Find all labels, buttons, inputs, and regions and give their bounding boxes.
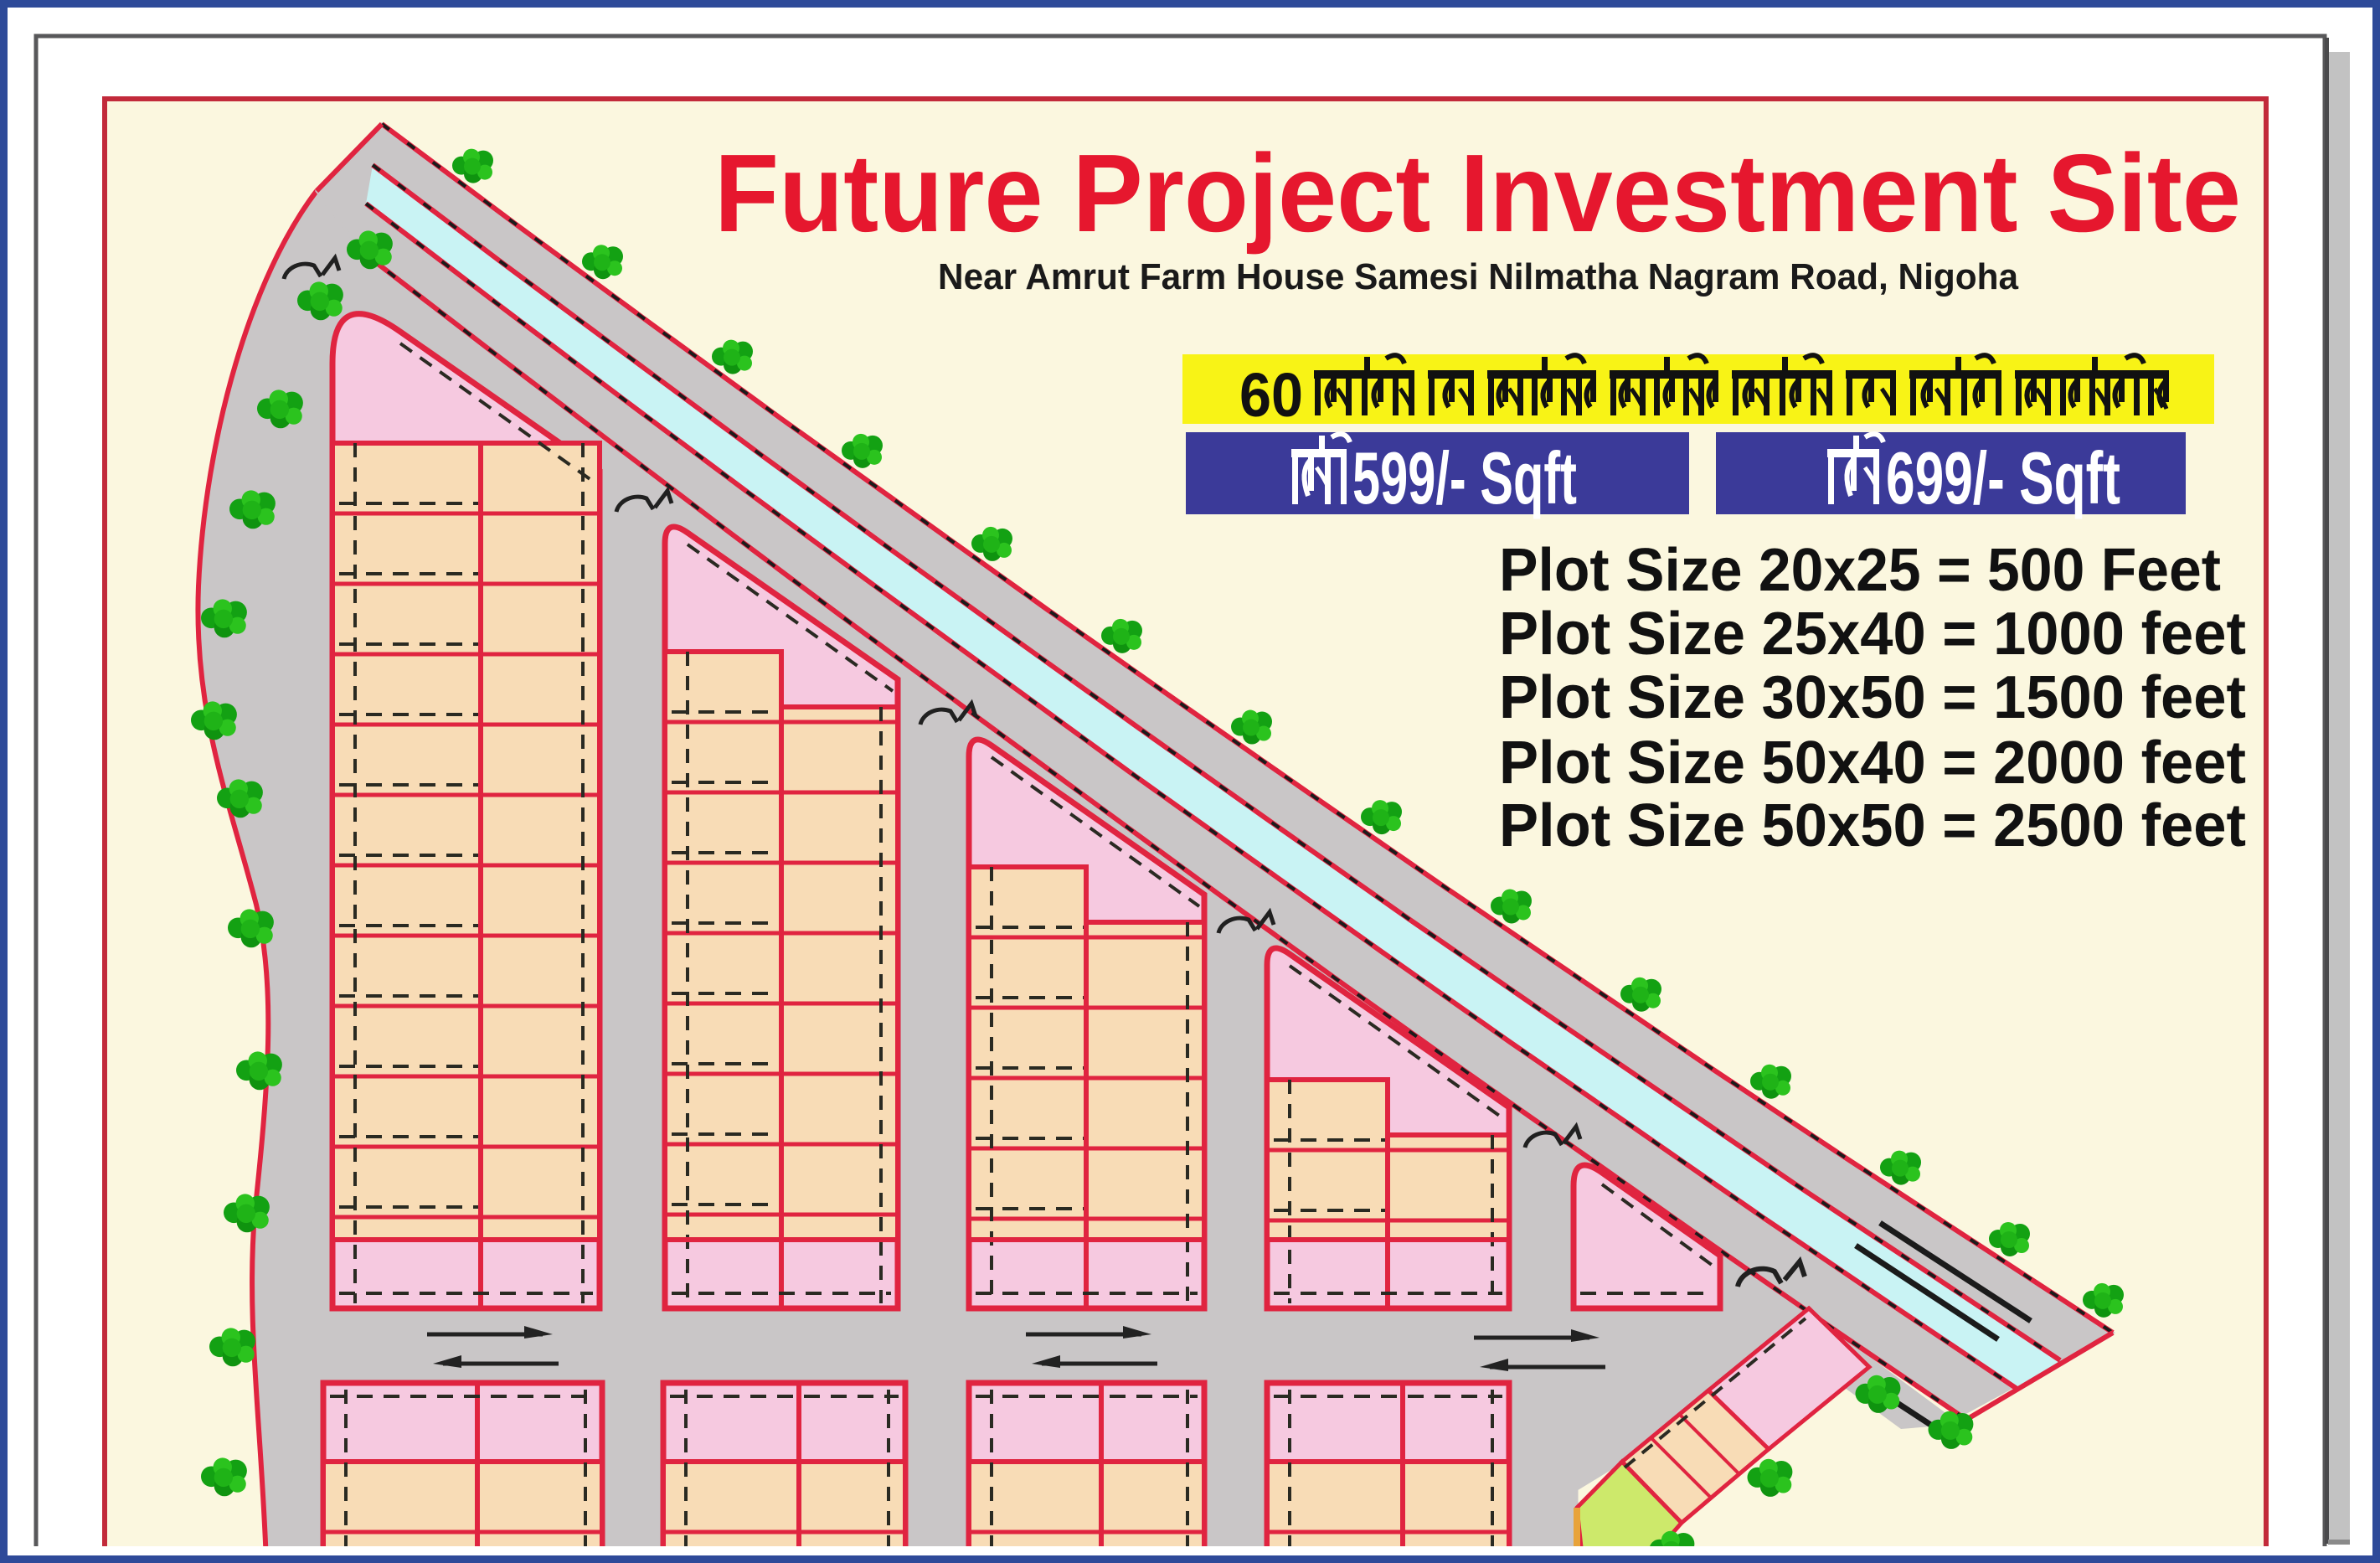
svg-text:699/- Sqft: 699/- Sqft (1886, 436, 2120, 519)
svg-text:Plot Size 25x40 = 1000 feet: Plot Size 25x40 = 1000 feet (1499, 601, 2246, 668)
svg-text:Plot Size 50x40 = 2000 feet: Plot Size 50x40 = 2000 feet (1499, 730, 2246, 797)
svg-text:Plot Size 30x50 = 1500 feet: Plot Size 30x50 = 1500 feet (1499, 664, 2246, 731)
svg-text:Future Project Investment Site: Future Project Investment Site (714, 132, 2241, 255)
svg-text:Plot Size 50x50 = 2500 feet: Plot Size 50x50 = 2500 feet (1499, 792, 2246, 859)
svg-text:Plot Size 20x25 = 500 Feet: Plot Size 20x25 = 500 Feet (1499, 537, 2221, 604)
svg-text:599/- Sqft: 599/- Sqft (1352, 436, 1577, 519)
svg-text:Near Amrut Farm House Samesi: Near Amrut Farm House Samesi Nilmatha Na… (938, 256, 2019, 297)
svg-text:60: 60 (1239, 360, 1303, 430)
